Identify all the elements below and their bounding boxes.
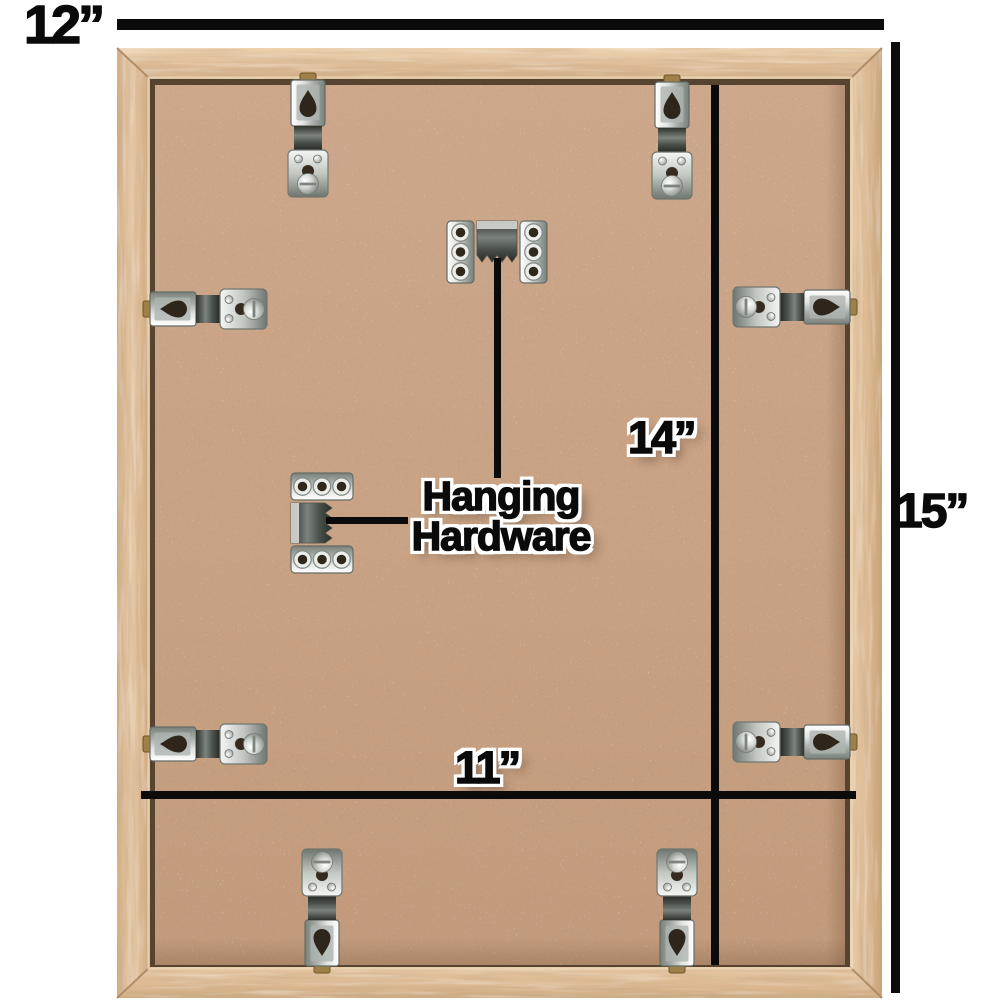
retainer-clip-top-left (288, 73, 328, 197)
outer-width-label: 12” (24, 0, 102, 56)
pointer-line-top-hanger (494, 258, 501, 478)
retainer-clip-right-lower (733, 722, 857, 762)
retainer-clip-bottom-right (657, 849, 697, 973)
retainer-clip-left-lower (143, 724, 267, 764)
inner-width-label: 11” (455, 742, 519, 794)
product-image: 12” 15” 14” 11” Hanging Hardware (0, 0, 1000, 1001)
dimension-line-inner-height (711, 85, 719, 965)
dimension-line-outer-width (117, 19, 884, 30)
retainer-clip-right-upper (733, 287, 857, 327)
retainer-clip-top-right (652, 75, 692, 199)
retainer-clip-bottom-left (302, 849, 342, 973)
hanging-hardware-label: Hanging Hardware (393, 476, 609, 556)
outer-height-label: 15” (896, 484, 967, 539)
inner-height-label: 14” (628, 412, 695, 464)
hanging-hardware-label-line1: Hanging (393, 476, 609, 516)
hanging-hardware-label-line2: Hardware (393, 516, 609, 556)
retainer-clip-left-upper (143, 289, 267, 329)
